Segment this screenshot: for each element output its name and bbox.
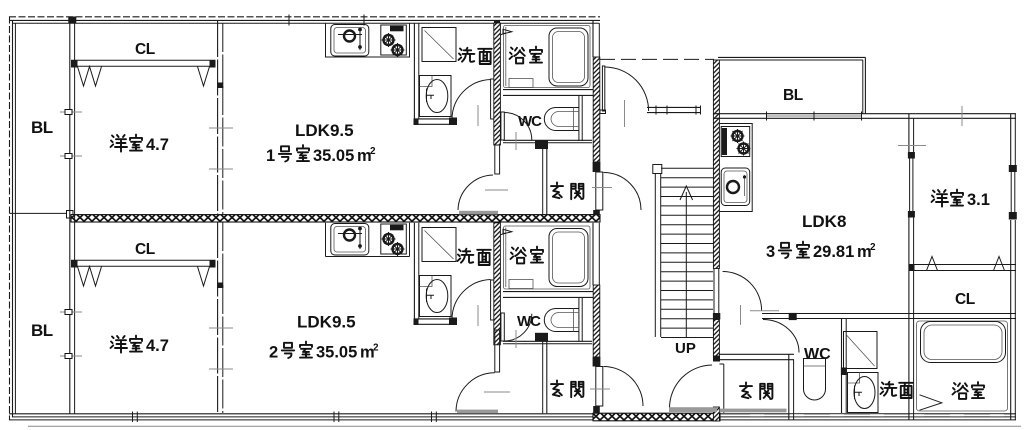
svg-text:WC: WC (517, 313, 541, 330)
svg-text:CL: CL (135, 241, 155, 258)
svg-text:1: 1 (266, 147, 275, 165)
svg-text:LDK9.5: LDK9.5 (297, 313, 356, 332)
svg-text:BL: BL (31, 118, 53, 137)
svg-text:3: 3 (766, 243, 775, 261)
svg-text:2: 2 (373, 343, 379, 354)
svg-text:CL: CL (955, 291, 975, 308)
svg-text:3.1: 3.1 (967, 191, 990, 209)
svg-text:2: 2 (269, 344, 278, 362)
svg-text:35.05: 35.05 (316, 344, 357, 362)
svg-text:CL: CL (135, 41, 155, 58)
svg-text:2: 2 (870, 242, 876, 253)
svg-text:35.05: 35.05 (313, 147, 354, 165)
svg-text:WC: WC (804, 346, 831, 363)
svg-text:4.7: 4.7 (146, 136, 169, 154)
svg-text:4.7: 4.7 (146, 337, 169, 355)
svg-text:29.81: 29.81 (813, 243, 854, 261)
svg-text:LDK9.5: LDK9.5 (295, 121, 354, 140)
svg-text:WC: WC (518, 113, 542, 130)
svg-text:BL: BL (783, 87, 803, 104)
svg-text:UP: UP (675, 340, 696, 357)
svg-text:BL: BL (31, 321, 53, 340)
svg-text:LDK8: LDK8 (802, 212, 846, 231)
svg-text:2: 2 (370, 146, 376, 157)
